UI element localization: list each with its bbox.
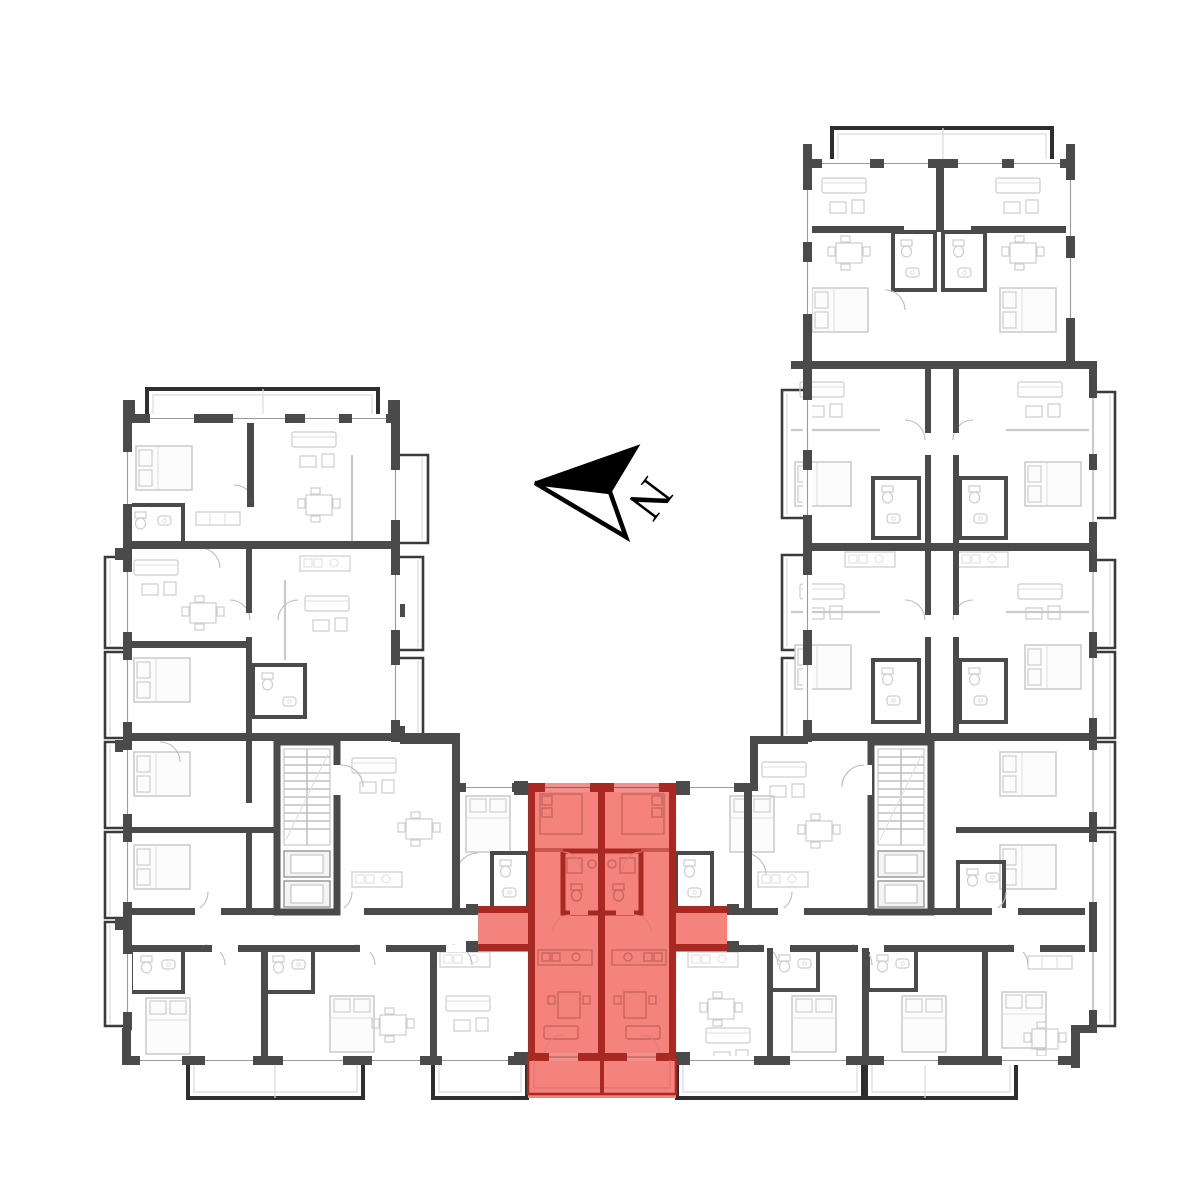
floor-plan-svg: N — [0, 0, 1200, 1200]
north-arrow-filled-blade — [535, 447, 637, 492]
stair-core-right — [842, 742, 931, 912]
north-label: N — [618, 468, 684, 531]
north-arrow-open-blade — [535, 483, 626, 537]
floor-plan-page: N — [0, 0, 1200, 1200]
north-arrow: N — [535, 447, 684, 537]
stair-core-left — [277, 742, 363, 912]
